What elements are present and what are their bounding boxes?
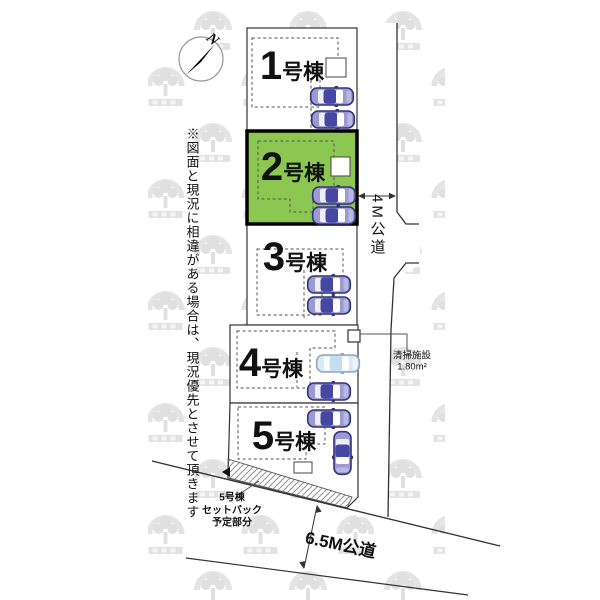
side-road-label: 4M公道 — [367, 194, 388, 257]
cleaning-facility-name: 清掃施設 — [393, 351, 431, 362]
setback-label-line2: セットバック — [202, 505, 262, 518]
car-icon-lot2-b — [313, 205, 356, 226]
setback-label-line1: 5号棟 — [202, 492, 262, 505]
lot-1-porch-square — [326, 58, 346, 77]
car-icon-lot2-a — [313, 185, 356, 206]
lot-3-number: 3 — [263, 237, 285, 277]
lot-1-label: 1号棟 — [260, 46, 324, 86]
lot-1-suffix: 号棟 — [282, 62, 324, 83]
north-compass — [179, 37, 223, 81]
lot-5-porch-square — [294, 462, 312, 473]
cleaning-facility-label: 清掃施設 1.80m² — [393, 351, 431, 374]
setback-label-line3: 予定部分 — [202, 517, 262, 530]
lot-2-number: 2 — [261, 147, 283, 187]
lot-4-label: 4号棟 — [239, 343, 303, 383]
lot-2-porch-square — [331, 157, 350, 176]
lot-4-number: 4 — [239, 343, 261, 383]
lot-5-suffix: 号棟 — [274, 432, 316, 453]
lot-2-suffix: 号棟 — [283, 163, 325, 184]
cleaning-facility-square — [348, 330, 360, 342]
site-plan-canvas: ※図面と現況に相違がある場合は、現況優先とさせて頂きます N 1号棟 2号棟 3… — [0, 0, 600, 600]
car-icon-lot1-a — [311, 86, 354, 107]
disclaimer-text: ※図面と現況に相違がある場合は、現況優先とさせて頂きます — [186, 127, 199, 519]
lot-3-label: 3号棟 — [263, 237, 327, 277]
lot-3-suffix: 号棟 — [285, 253, 327, 274]
lot-5-label: 5号棟 — [252, 416, 316, 456]
car-icon-lot1-b — [312, 109, 355, 130]
car-icon-lot3-a — [308, 274, 351, 295]
lot-4-suffix: 号棟 — [261, 359, 303, 380]
lot-5-number: 5 — [252, 416, 274, 456]
site-plan-drawing — [0, 0, 600, 600]
lot-1-number: 1 — [260, 46, 282, 86]
car-icon-lot3-b — [308, 295, 351, 316]
setback-label: 5号棟 セットバック 予定部分 — [202, 492, 262, 530]
car-icon-lot4-blue — [317, 353, 360, 374]
lot-2-label: 2号棟 — [261, 147, 325, 187]
cleaning-facility-size: 1.80m² — [393, 362, 431, 373]
car-icon-lot5-vertical — [332, 432, 353, 475]
car-icon-lot4-b — [308, 381, 351, 402]
